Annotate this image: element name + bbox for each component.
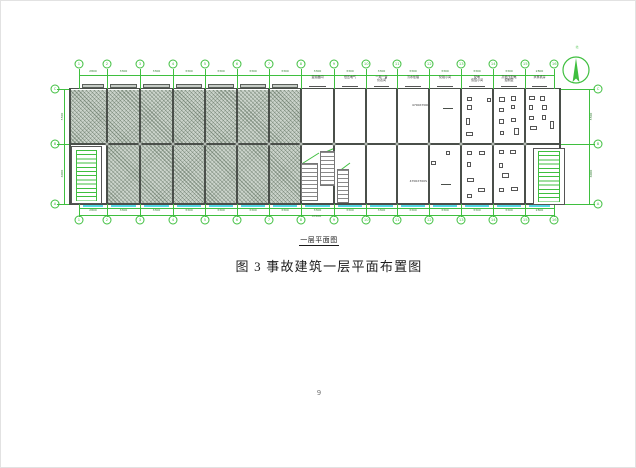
equipment-symbol <box>466 132 473 136</box>
dim-bottom: 3300 <box>213 209 229 212</box>
room-label: 高低压配电 控制室 <box>501 76 517 82</box>
door-opening <box>437 86 453 88</box>
column-marker <box>396 143 399 146</box>
equipment-symbol <box>479 151 485 155</box>
grid-label: 4 <box>171 62 175 66</box>
line <box>493 204 494 217</box>
dim-top: 3300 <box>309 70 326 73</box>
line <box>107 69 108 89</box>
grid-bubble-top: 11 <box>393 60 402 69</box>
window-top <box>272 84 298 89</box>
equipment-symbol <box>511 105 515 109</box>
figure-caption: 图 3 事故建筑一层平面布置图 <box>219 256 439 275</box>
window-bottom <box>433 205 457 208</box>
grid-label: B <box>596 142 600 146</box>
line <box>525 69 526 89</box>
dim-bottom: 3300 <box>148 209 165 212</box>
dim-left: 6000 <box>60 164 64 184</box>
dim-bottom: 2800 <box>532 209 547 212</box>
equipment-symbol <box>487 98 491 102</box>
grid-bubble-top: 5 <box>201 60 210 69</box>
window-top <box>143 84 170 89</box>
dim-top: 3300 <box>148 70 165 73</box>
equipment-symbol <box>511 118 516 122</box>
room-label: 配电 值班小间 <box>469 76 485 82</box>
line <box>301 69 302 89</box>
dim-bottom: 3300 <box>245 209 261 212</box>
line <box>173 69 174 89</box>
room-label: 低压电气 <box>342 76 358 79</box>
door-opening <box>532 86 547 88</box>
line <box>334 69 335 89</box>
grid-label: 11 <box>395 218 399 222</box>
grid-bubble-top: 12 <box>425 60 434 69</box>
grid-label: C <box>596 87 600 91</box>
line <box>173 204 174 217</box>
grid-label: 11 <box>395 62 399 66</box>
grid-label: 1 <box>77 62 81 66</box>
window-top <box>82 84 104 89</box>
column-marker <box>139 143 142 146</box>
left-staircase <box>76 150 97 201</box>
annotation: 4700X700S <box>403 180 427 183</box>
column-marker <box>492 143 495 146</box>
line <box>237 69 238 89</box>
grid-label: 15 <box>523 218 527 222</box>
grid-label: 16 <box>552 62 556 66</box>
equipment-symbol <box>467 194 472 198</box>
line <box>397 69 398 89</box>
equipment-symbol <box>499 108 504 112</box>
dim-top: 3300 <box>437 70 453 73</box>
line <box>79 204 80 217</box>
equipment-symbol <box>514 128 519 135</box>
line <box>269 69 270 89</box>
column-marker <box>365 143 368 146</box>
window-bottom <box>305 205 330 208</box>
equipment-symbol <box>542 115 546 120</box>
grid-label: A <box>596 202 600 206</box>
line <box>107 204 108 217</box>
dim-top: 3300 <box>342 70 358 73</box>
equipment-symbol <box>540 96 545 101</box>
dim-bottom: 3300 <box>277 209 293 212</box>
line <box>429 69 430 89</box>
line <box>57 89 69 90</box>
north-arrow-icon <box>559 43 595 85</box>
dim-top: 2800 <box>532 70 547 73</box>
dim-left: 5500 <box>60 106 64 126</box>
grid-bubble-top: 4 <box>169 60 178 69</box>
window-top <box>240 84 266 89</box>
column-marker <box>204 143 207 146</box>
equipment-symbol <box>550 121 554 129</box>
dim-right: 6000 <box>589 164 593 184</box>
window-bottom <box>370 205 393 208</box>
window-bottom <box>497 205 521 208</box>
equipment-symbol <box>467 97 472 101</box>
dim-top: 3300 <box>213 70 229 73</box>
equipment-symbol <box>511 187 518 191</box>
equipment-symbol <box>499 119 504 124</box>
grid-bubble-top: 16 <box>550 60 559 69</box>
line <box>461 69 462 89</box>
equipment-symbol <box>499 188 504 192</box>
dim-top: 3300 <box>405 70 421 73</box>
dim-top: 3300 <box>469 70 485 73</box>
line <box>140 204 141 217</box>
grid-bubble-top: 13 <box>457 60 466 69</box>
line <box>396 89 398 204</box>
dim-top: 2800 <box>86 70 100 73</box>
line <box>554 69 555 89</box>
grid-label: 9 <box>332 218 336 222</box>
column-marker <box>236 143 239 146</box>
dim-bottom: 3300 <box>437 209 453 212</box>
equipment-symbol <box>499 150 504 154</box>
door-opening <box>374 86 390 88</box>
line <box>79 69 80 89</box>
line <box>460 89 462 204</box>
equipment-symbol <box>467 178 474 182</box>
equipment-symbol <box>467 151 472 155</box>
grid-label: 4 <box>171 218 175 222</box>
grid-label: 8 <box>299 62 303 66</box>
line <box>204 89 206 204</box>
grid-label: 8 <box>299 218 303 222</box>
equipment-symbol <box>530 126 537 130</box>
window-top <box>176 84 202 89</box>
dim-top: 3300 <box>245 70 261 73</box>
grid-label: 14 <box>491 62 495 66</box>
grid-bubble-top: 6 <box>233 60 242 69</box>
window-bottom <box>83 205 103 208</box>
column-marker <box>300 143 303 146</box>
grid-bubble-top: 15 <box>521 60 530 69</box>
line <box>524 89 526 204</box>
equipment-symbol <box>529 105 533 110</box>
dim-top: 3300 <box>277 70 293 73</box>
line <box>561 89 595 90</box>
annotation: 4700X700L <box>405 104 429 107</box>
column-marker <box>460 143 463 146</box>
dim-bottom: 3300 <box>501 209 517 212</box>
grid-bubble-top: 1 <box>75 60 84 69</box>
line <box>365 89 367 204</box>
grid-bubble-top: 10 <box>362 60 371 69</box>
door-opening <box>309 86 326 88</box>
grid-label: 5 <box>203 218 207 222</box>
line <box>366 69 367 89</box>
column-marker <box>268 143 271 146</box>
grid-label: 16 <box>552 218 556 222</box>
line <box>139 89 141 204</box>
grid-label: 12 <box>427 218 431 222</box>
equipment-symbol <box>542 105 547 110</box>
line <box>333 89 335 204</box>
dim-bottom: 3300 <box>374 209 390 212</box>
equipment-symbol <box>529 96 535 100</box>
line <box>57 144 69 145</box>
window-bottom <box>144 205 169 208</box>
dim-bottom: 3300 <box>181 209 197 212</box>
grid-label: 7 <box>267 62 271 66</box>
equipment-symbol <box>499 97 505 102</box>
dim-bottom: 3300 <box>342 209 358 212</box>
grid-label: 7 <box>267 218 271 222</box>
dim-bottom: 3300 <box>469 209 485 212</box>
line <box>441 184 451 185</box>
grid-label: 13 <box>459 218 463 222</box>
line <box>554 204 555 217</box>
dim-top: 3300 <box>181 70 197 73</box>
window-bottom <box>338 205 362 208</box>
line <box>561 144 595 145</box>
line <box>268 89 270 204</box>
line <box>493 69 494 89</box>
door-opening <box>501 86 517 88</box>
column-marker <box>106 143 109 146</box>
column-marker <box>428 143 431 146</box>
grid-bubble-top: 14 <box>489 60 498 69</box>
dim-top: 3300 <box>115 70 132 73</box>
line <box>69 143 561 144</box>
grid-label: 5 <box>203 62 207 66</box>
line <box>106 89 108 204</box>
room-label: 化验小间 <box>437 76 453 79</box>
grid-bubble-top: 8 <box>297 60 306 69</box>
grid-bubble-top: 9 <box>330 60 339 69</box>
grid-label: 6 <box>235 62 239 66</box>
grid-label: 15 <box>523 62 527 66</box>
equipment-symbol <box>502 173 509 178</box>
window-bottom <box>111 205 136 208</box>
column-marker <box>524 143 527 146</box>
equipment-symbol <box>466 118 470 125</box>
page-number: 9 <box>301 389 337 397</box>
middle-stair-flight <box>320 151 335 186</box>
line <box>57 204 69 205</box>
line <box>64 89 65 204</box>
window-top <box>208 84 234 89</box>
window-bottom <box>177 205 201 208</box>
grid-label: 3 <box>138 218 142 222</box>
window-bottom <box>241 205 265 208</box>
room-label: 一用一备 仪表间 <box>374 76 390 82</box>
equipment-symbol <box>467 162 471 167</box>
equipment-symbol <box>500 131 504 135</box>
dim-bottom: 2800 <box>86 209 100 212</box>
window-bottom <box>465 205 489 208</box>
grid-label: 12 <box>427 62 431 66</box>
middle-stair-flight <box>301 163 318 201</box>
line <box>205 69 206 89</box>
grid-label: 9 <box>332 62 336 66</box>
column-marker <box>333 143 336 146</box>
equipment-symbol <box>478 188 485 192</box>
equipment-symbol <box>467 105 472 110</box>
equipment-symbol <box>510 150 516 154</box>
grid-label: 6 <box>235 218 239 222</box>
line <box>492 89 494 204</box>
window-top <box>110 84 137 89</box>
middle-stair-flight <box>337 169 349 203</box>
equipment-symbol <box>529 116 534 120</box>
room-label: 水泵机房 <box>532 76 547 79</box>
line <box>443 108 453 109</box>
north-label: 北 <box>568 46 586 49</box>
dim-bottom: 3300 <box>309 209 326 212</box>
equipment-symbol <box>431 161 436 165</box>
door-opening <box>342 86 358 88</box>
grid-bubble-top: 7 <box>265 60 274 69</box>
line <box>140 69 141 89</box>
grid-label: 1 <box>77 218 81 222</box>
grid-label: 10 <box>364 218 368 222</box>
door-opening <box>469 86 485 88</box>
dim-total: 47600 <box>198 215 436 218</box>
column-marker <box>172 143 175 146</box>
grid-bubble-top: 3 <box>136 60 145 69</box>
grid-label: 2 <box>105 218 109 222</box>
line <box>236 89 238 204</box>
grid-label: 2 <box>105 62 109 66</box>
right-staircase <box>538 151 560 202</box>
equipment-symbol <box>446 151 450 155</box>
document-page: 1122334455667788991010111112121313141415… <box>0 0 636 468</box>
equipment-symbol <box>511 96 516 101</box>
drawing-title-label: 一层平面图 <box>289 235 349 245</box>
line <box>561 204 595 205</box>
room-label: 污水处理 <box>405 76 421 79</box>
dim-bottom: 3300 <box>405 209 421 212</box>
grid-label: 13 <box>459 62 463 66</box>
dim-top: 3300 <box>501 70 517 73</box>
line <box>461 204 462 217</box>
equipment-symbol <box>499 163 503 168</box>
window-bottom <box>273 205 297 208</box>
grid-bubble-top: 2 <box>103 60 112 69</box>
window-bottom <box>209 205 233 208</box>
grid-label: 10 <box>364 62 368 66</box>
door-opening <box>405 86 421 88</box>
window-bottom <box>401 205 425 208</box>
dim-bottom: 3300 <box>115 209 132 212</box>
grid-label: 3 <box>138 62 142 66</box>
line <box>525 204 526 217</box>
line <box>172 89 174 204</box>
dim-right: 5500 <box>589 106 593 126</box>
grid-label: 14 <box>491 218 495 222</box>
room-label: 变频器间 <box>309 76 326 79</box>
dim-top: 3300 <box>374 70 390 73</box>
